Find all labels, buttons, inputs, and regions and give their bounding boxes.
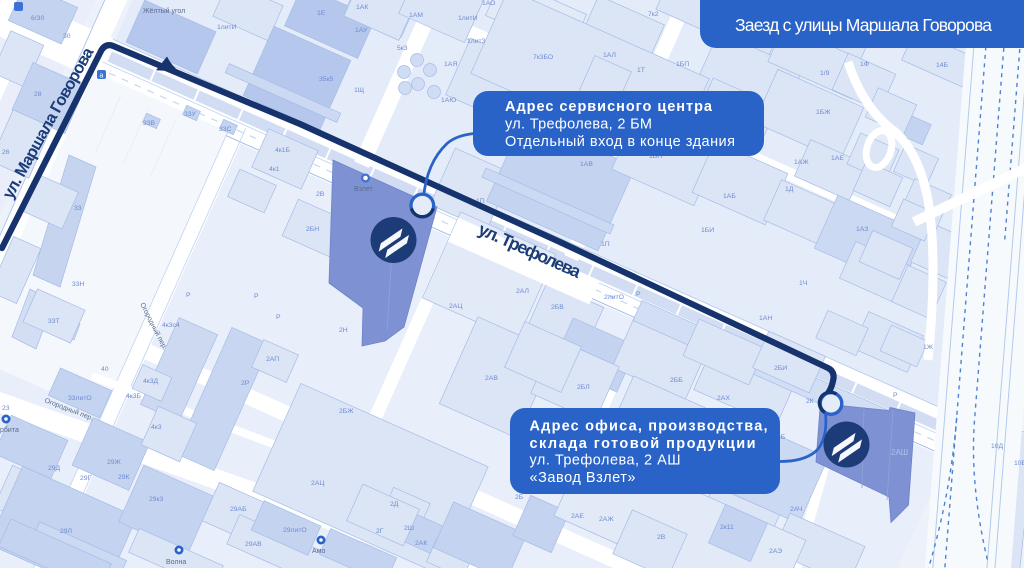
svg-text:4к1: 4к1: [269, 166, 280, 173]
svg-text:Р: Р: [636, 291, 641, 298]
svg-text:2АП: 2АП: [266, 356, 279, 363]
svg-text:23: 23: [2, 405, 10, 412]
svg-text:4к3Б: 4к3Б: [126, 393, 142, 400]
svg-text:30: 30: [63, 33, 71, 40]
svg-text:1АЮ: 1АЮ: [441, 97, 456, 104]
svg-text:2к11: 2к11: [720, 524, 734, 531]
svg-text:1Д: 1Д: [785, 186, 794, 193]
svg-text:2АЭ: 2АЭ: [769, 548, 782, 555]
svg-text:29Ж: 29Ж: [107, 459, 122, 466]
svg-text:29АБ: 29АБ: [230, 506, 247, 513]
svg-text:2Р: 2Р: [241, 380, 250, 387]
svg-text:2АЦ: 2АЦ: [449, 303, 462, 310]
svg-text:2АЖ: 2АЖ: [599, 516, 614, 523]
svg-text:Р: Р: [254, 293, 259, 300]
svg-text:1Ф: 1Ф: [860, 61, 869, 68]
svg-text:33литО: 33литО: [68, 395, 92, 402]
svg-text:рбита: рбита: [0, 426, 19, 434]
svg-text:2Ш: 2Ш: [404, 525, 414, 532]
svg-text:35к5: 35к5: [319, 76, 334, 83]
svg-text:2АЛ: 2АЛ: [516, 288, 529, 295]
svg-text:Р: Р: [893, 392, 898, 399]
svg-text:2В: 2В: [316, 191, 325, 198]
svg-text:2БЛ: 2БЛ: [577, 384, 590, 391]
svg-text:1АБ: 1АБ: [723, 193, 736, 200]
svg-text:2К: 2К: [806, 398, 814, 405]
svg-text:1Щ: 1Щ: [354, 87, 365, 94]
svg-text:Адрес офиса, производства,: Адрес офиса, производства,: [530, 419, 768, 435]
svg-text:29литО: 29литО: [283, 527, 307, 534]
svg-text:Волна: Волна: [166, 559, 186, 566]
svg-text:Амо: Амо: [312, 548, 325, 555]
svg-text:1БИ: 1БИ: [701, 227, 714, 234]
svg-text:1литИ: 1литИ: [217, 24, 237, 31]
svg-text:«Завод Взлет»: «Завод Взлет»: [530, 470, 636, 486]
svg-text:1АВ: 1АВ: [580, 161, 593, 168]
svg-text:ул. Трефолева, 2 БМ: ул. Трефолева, 2 БМ: [505, 117, 652, 133]
svg-text:2В: 2В: [657, 534, 666, 541]
svg-text:26: 26: [2, 149, 10, 156]
svg-text:2Г: 2Г: [376, 528, 384, 535]
svg-text:33: 33: [74, 205, 82, 212]
svg-text:2АК: 2АК: [415, 540, 427, 547]
svg-text:33Т: 33Т: [48, 318, 60, 325]
svg-text:1АК: 1АК: [356, 4, 368, 11]
svg-text:33В: 33В: [143, 120, 156, 127]
svg-text:1Е: 1Е: [317, 10, 326, 17]
svg-text:1АЯ: 1АЯ: [444, 61, 457, 68]
svg-text:2АХ: 2АХ: [717, 395, 730, 402]
svg-text:Взлет: Взлет: [354, 186, 374, 193]
svg-text:1БП: 1БП: [676, 61, 689, 68]
svg-text:10Д: 10Д: [991, 443, 1004, 450]
svg-text:1Т: 1Т: [637, 67, 645, 74]
svg-text:1Ж: 1Ж: [923, 344, 934, 351]
svg-text:Жёлтый угол: Жёлтый угол: [143, 7, 185, 15]
svg-text:10Б: 10Б: [1014, 460, 1024, 467]
svg-text:33Н: 33Н: [72, 281, 85, 288]
svg-text:29к3: 29к3: [149, 496, 164, 503]
svg-text:33У: 33У: [184, 111, 197, 118]
svg-text:1лит3: 1лит3: [467, 38, 486, 45]
svg-text:Р: Р: [186, 292, 191, 299]
svg-text:28: 28: [34, 91, 42, 98]
svg-text:2АШ: 2АШ: [891, 448, 908, 457]
svg-text:2БН: 2БН: [306, 226, 319, 233]
svg-text:6/30: 6/30: [31, 15, 44, 22]
svg-text:1/9: 1/9: [820, 70, 830, 77]
svg-text:1АО: 1АО: [482, 0, 495, 7]
svg-text:29АВ: 29АВ: [245, 541, 262, 548]
svg-text:Заезд с улицы Маршала Говорова: Заезд с улицы Маршала Говорова: [735, 15, 992, 35]
svg-text:4к3: 4к3: [151, 424, 162, 431]
svg-text:2БЖ: 2БЖ: [339, 408, 354, 415]
svg-text:2АЧ: 2АЧ: [790, 506, 802, 513]
svg-text:1АЗ: 1АЗ: [856, 226, 868, 233]
svg-text:40: 40: [101, 366, 109, 373]
svg-text:1БЖ: 1БЖ: [816, 109, 831, 116]
svg-text:склада готовой продукции: склада готовой продукции: [530, 436, 756, 452]
svg-text:1литИ: 1литИ: [458, 15, 478, 22]
svg-text:Отдельный вход в конце здания: Отдельный вход в конце здания: [505, 134, 735, 150]
svg-text:4к3с4: 4к3с4: [162, 322, 180, 329]
svg-text:1АЖ: 1АЖ: [794, 159, 809, 166]
svg-text:4к3Д: 4к3Д: [143, 378, 159, 385]
svg-text:29Л: 29Л: [60, 528, 72, 535]
svg-text:1АЛ: 1АЛ: [603, 52, 616, 59]
svg-text:Р: Р: [276, 314, 281, 321]
svg-text:1Ч: 1Ч: [799, 280, 807, 287]
svg-text:2ББ: 2ББ: [670, 377, 683, 384]
svg-text:1П: 1П: [601, 241, 610, 248]
svg-text:ул. Трефолева, 2 АШ: ул. Трефолева, 2 АШ: [530, 453, 681, 469]
svg-text:2БВ: 2БВ: [551, 304, 564, 311]
svg-text:2АЦ: 2АЦ: [311, 480, 324, 487]
svg-text:2литО: 2литО: [604, 294, 624, 301]
svg-text:2Н: 2Н: [339, 327, 348, 334]
svg-text:2БИ: 2БИ: [774, 365, 787, 372]
svg-text:33С: 33С: [219, 126, 232, 133]
svg-text:4к1Б: 4к1Б: [275, 147, 291, 154]
svg-text:Адрес сервисного центра: Адрес сервисного центра: [505, 99, 713, 115]
svg-text:2Д: 2Д: [390, 501, 399, 508]
svg-text:2Б: 2Б: [515, 494, 524, 501]
svg-text:1АМ: 1АМ: [409, 12, 423, 19]
svg-text:5к3: 5к3: [397, 45, 408, 52]
svg-text:7к3БО: 7к3БО: [533, 54, 553, 61]
svg-text:1АЕ: 1АЕ: [831, 155, 844, 162]
svg-text:а: а: [100, 73, 104, 80]
svg-text:29Г: 29Г: [80, 475, 92, 482]
svg-text:2АЕ: 2АЕ: [571, 513, 584, 520]
svg-text:29К: 29К: [118, 474, 130, 481]
svg-text:1АУ: 1АУ: [355, 27, 368, 34]
svg-text:29Д: 29Д: [48, 465, 61, 472]
svg-text:14Б: 14Б: [936, 62, 949, 69]
svg-text:7к2: 7к2: [648, 11, 659, 18]
svg-text:2АВ: 2АВ: [485, 375, 498, 382]
svg-text:1АН: 1АН: [759, 315, 772, 322]
